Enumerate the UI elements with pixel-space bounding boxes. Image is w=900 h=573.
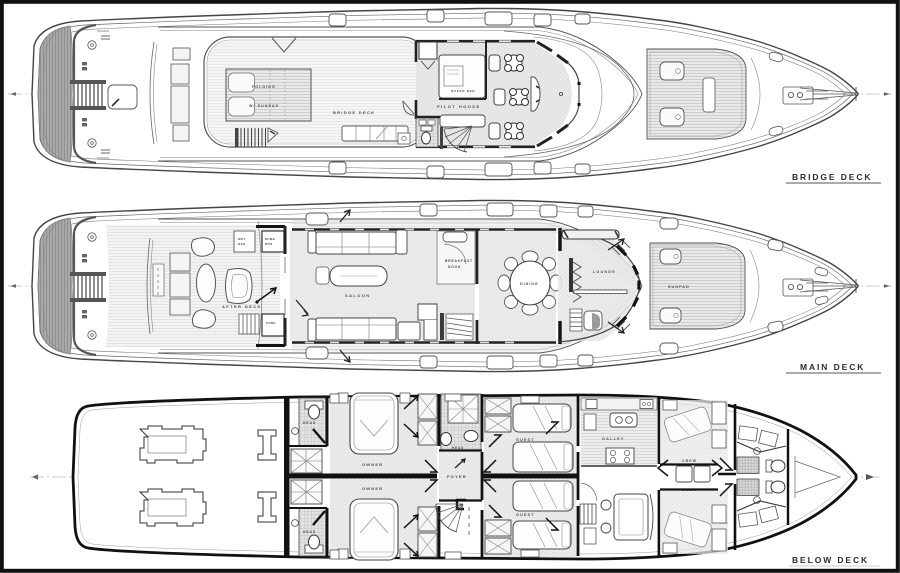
svg-text:BRIDGE DECK: BRIDGE DECK [333,110,375,115]
svg-text:BAR: BAR [238,242,246,246]
svg-text:SUNPAD: SUNPAD [668,285,690,289]
svg-text:STWD: STWD [266,321,276,325]
svg-text:W/ SUNPAD: W/ SUNPAD [249,104,279,108]
svg-text:AFTER DECK: AFTER DECK [222,304,262,309]
svg-text:FOLDING: FOLDING [252,85,276,89]
svg-text:PILOT HOUSE: PILOT HOUSE [437,104,481,109]
svg-text:QUEEN BED: QUEEN BED [451,89,475,93]
svg-text:BRIDGE DECK: BRIDGE DECK [792,172,872,182]
svg-text:WET: WET [238,237,246,241]
svg-text:GALLEY: GALLEY [602,437,625,441]
svg-text:NOOK: NOOK [448,265,461,269]
svg-text:BELOW DECK: BELOW DECK [792,555,869,565]
svg-text:LOUNGE: LOUNGE [593,270,616,274]
svg-text:CREW: CREW [682,459,697,463]
svg-text:DINING: DINING [520,282,539,286]
svg-text:WTR: WTR [265,242,273,246]
svg-text:FOYER: FOYER [447,474,467,479]
svg-text:OWNER: OWNER [362,462,383,467]
svg-text:GUEST: GUEST [516,513,535,517]
svg-text:MAIN DECK: MAIN DECK [800,362,865,372]
svg-text:HEAD: HEAD [303,421,316,425]
svg-text:GUEST: GUEST [516,438,535,442]
svg-text:SALOON: SALOON [345,293,371,298]
svg-text:DUMB: DUMB [265,237,275,241]
svg-text:HEAD: HEAD [303,530,316,534]
svg-text:OWNER: OWNER [362,486,383,491]
svg-text:BREAKFAST: BREAKFAST [445,259,473,263]
